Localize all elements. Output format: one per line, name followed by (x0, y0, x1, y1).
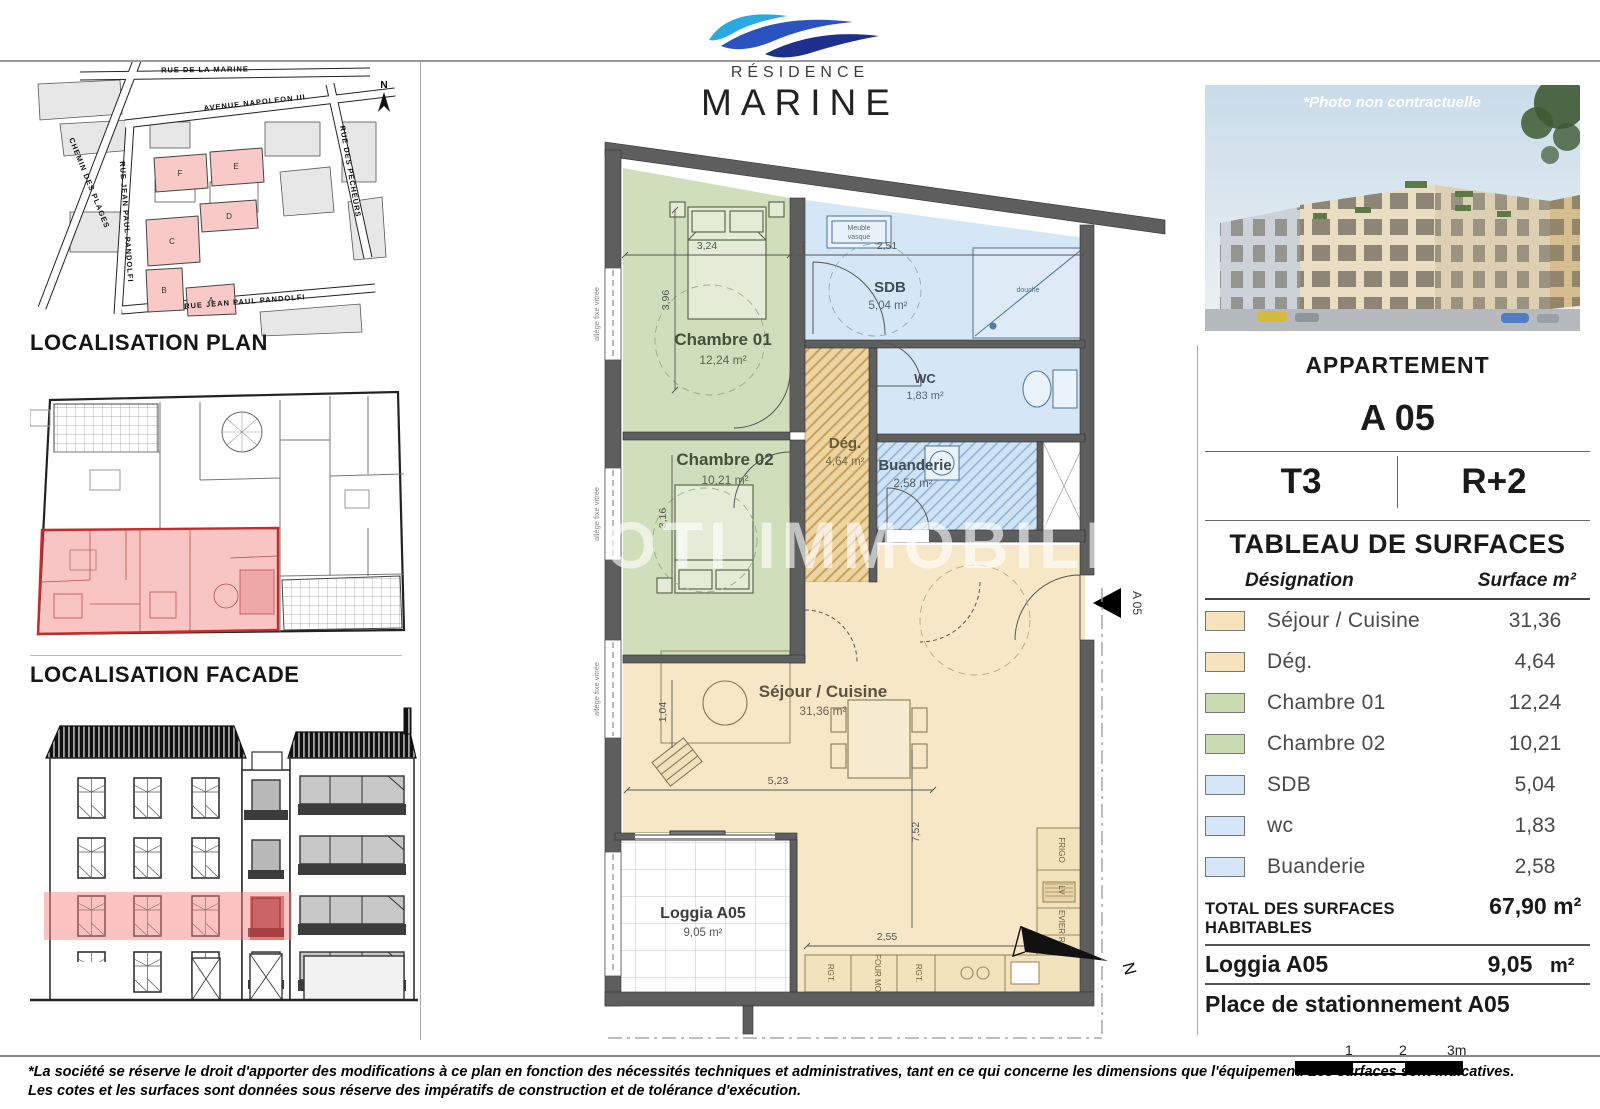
residence-marine-logo: Résidence MARINE (640, 4, 960, 124)
svg-text:RGT.: RGT. (826, 964, 835, 982)
sdb-area: 5,04 m² (869, 300, 908, 312)
entrance-label: A 05 (1130, 591, 1144, 615)
type-floor-row: T3 R+2 (1205, 456, 1590, 508)
table-row: Chambre 02 10,21 (1205, 723, 1590, 764)
sdb-label: SDB (874, 279, 906, 296)
buanderie-label: Buanderie (878, 457, 951, 474)
svg-text:vasque: vasque (848, 234, 871, 241)
parking-label: Place de stationnement A05 (1205, 991, 1590, 1018)
loggia-value: 9,05 (1470, 951, 1550, 978)
svg-text:LV: LV (1057, 885, 1066, 895)
col-surface: Surface m² (1478, 570, 1576, 592)
buanderie-area: 2,58 m² (894, 478, 933, 490)
svg-text:3,96: 3,96 (660, 290, 672, 311)
wc-label: WC (914, 371, 936, 386)
room-label: Dég. (1267, 650, 1313, 674)
table-header-row: Désignation Surface m² (1205, 570, 1590, 600)
facade-section-divider (30, 655, 402, 656)
svg-text:D: D (226, 212, 232, 221)
left-roof (46, 726, 246, 758)
right-column-divider (1197, 345, 1198, 1035)
table-row: SDB 5,04 (1205, 764, 1590, 805)
svg-text:7,52: 7,52 (910, 822, 922, 843)
table-row: wc 1,83 (1205, 805, 1590, 846)
watermark: OTI IMMOBILI (605, 508, 1110, 582)
room-surface: 10,21 (1480, 732, 1590, 756)
svg-text:2,55: 2,55 (877, 931, 898, 943)
disclaimer-line-2: Les cotes et les surfaces sont données s… (28, 1082, 1588, 1101)
logo-residence-text: Résidence (640, 64, 960, 82)
svg-text:C: C (169, 237, 175, 246)
floor-localisation-plan (30, 380, 420, 648)
room-color-swatch (1205, 611, 1245, 631)
room-surface: 4,64 (1480, 650, 1590, 674)
disclaimer: *La société se réserve le droit d'apport… (28, 1063, 1588, 1101)
window-sejour (605, 640, 621, 738)
location-map: F E D C B A RUE DE LA MARINE AVENUE NAPO… (30, 62, 402, 340)
photo-caption: *Photo non contractuelle (1303, 94, 1481, 111)
panel-divider-1 (1205, 451, 1590, 452)
room-label: Séjour / Cuisine (1267, 609, 1420, 633)
svg-text:EVIER: EVIER (1057, 910, 1066, 934)
room-color-swatch (1205, 775, 1245, 795)
loggia-label: Loggia A05 (660, 905, 746, 922)
svg-text:7: 7 (800, 240, 806, 252)
terrace-top-left (54, 404, 158, 452)
table-row: Dég. 4,64 (1205, 641, 1590, 682)
svg-text:allège fixe vitrée: allège fixe vitrée (592, 287, 601, 341)
plan-north-letter: N (1119, 960, 1141, 977)
chambre2-area: 10,21 m² (701, 473, 748, 487)
room-label: Chambre 02 (1267, 732, 1386, 756)
table-row: Buanderie 2,58 (1205, 846, 1590, 887)
chambre1-area: 12,24 m² (699, 353, 746, 367)
total-row: TOTAL DES SURFACES HABITABLES 67,90 m² (1205, 893, 1590, 946)
deg-area: 4,64 m² (826, 456, 865, 468)
apartment-floor-plan: allège fixe vitrée allège fixe vitrée al… (575, 140, 1195, 1045)
right-roof (288, 732, 416, 758)
svg-text:FOUR MO: FOUR MO (873, 954, 882, 992)
unit-type: T3 (1205, 456, 1397, 508)
facade-drawing (30, 700, 420, 1035)
footer-divider (0, 1055, 1600, 1057)
entrance-marker: A 05 (1093, 588, 1144, 618)
table-row: Séjour / Cuisine 31,36 (1205, 600, 1590, 641)
svg-text:B: B (161, 286, 166, 295)
room-color-swatch (1205, 734, 1245, 754)
surface-panel: APPARTEMENT A 05 T3 R+2 TABLEAU DE SURFA… (1205, 352, 1590, 1078)
room-surface: 2,58 (1480, 855, 1590, 879)
localisation-plan-title: LOCALISATION PLAN (30, 330, 268, 356)
panel-divider-2 (1205, 520, 1590, 521)
logo-marine-text: MARINE (640, 82, 960, 124)
localisation-facade-title: LOCALISATION FACADE (30, 662, 299, 688)
room-surface: 1,83 (1480, 814, 1590, 838)
sejour-label: Séjour / Cuisine (759, 682, 887, 701)
wave-logo-icon (695, 4, 905, 62)
svg-text:E: E (233, 162, 238, 171)
appartement-heading: APPARTEMENT (1205, 352, 1590, 379)
window-loggia (605, 852, 621, 976)
room-label: Buanderie (1267, 855, 1365, 879)
svg-text:RUE DE LA MARINE: RUE DE LA MARINE (161, 64, 249, 74)
svg-text:1,04: 1,04 (657, 702, 669, 723)
svg-text:2,51: 2,51 (877, 240, 898, 252)
loggia-row: Loggia A05 9,05 m² (1205, 946, 1590, 985)
surfaces-table-title: TABLEAU DE SURFACES (1205, 529, 1590, 560)
plan-sheet: Résidence MARINE (0, 0, 1600, 1109)
loggia-label: Loggia A05 (1205, 951, 1328, 978)
window-labels: allège fixe vitrée allège fixe vitrée al… (592, 287, 601, 716)
room-color-swatch (1205, 857, 1245, 877)
wc-area: 1,83 m² (906, 390, 944, 402)
room-surface: 31,36 (1480, 609, 1590, 633)
room-surface: 12,24 (1480, 691, 1590, 715)
svg-text:allège fixe vitrée: allège fixe vitrée (592, 487, 601, 541)
room-label: Chambre 01 (1267, 691, 1386, 715)
unit-floor: R+2 (1397, 456, 1590, 508)
svg-text:Meuble: Meuble (848, 225, 871, 232)
chambre2-label: Chambre 02 (676, 450, 773, 469)
loggia-unit: m² (1550, 955, 1590, 978)
disclaimer-line-1: *La société se réserve le droit d'apport… (28, 1063, 1588, 1082)
room-label: wc (1267, 814, 1293, 838)
svg-text:RGT.: RGT. (914, 964, 923, 982)
room-color-swatch (1205, 693, 1245, 713)
chambre1-label: Chambre 01 (674, 330, 771, 349)
col-designation: Désignation (1245, 570, 1354, 592)
total-label: TOTAL DES SURFACES HABITABLES (1205, 900, 1480, 938)
sejour-area: 31,36 m² (799, 704, 846, 718)
loggia-area: 9,05 m² (684, 927, 723, 939)
room-label: SDB (1267, 773, 1311, 797)
svg-text:F: F (178, 169, 183, 178)
svg-text:3,24: 3,24 (697, 240, 718, 252)
room-surface: 5,04 (1480, 773, 1590, 797)
roof-box (252, 752, 282, 770)
table-row: Chambre 01 12,24 (1205, 682, 1590, 723)
facade-unit-highlight (250, 896, 284, 940)
chimney (404, 708, 411, 734)
svg-text:allège fixe vitrée: allège fixe vitrée (592, 662, 601, 716)
building-photo: *Photo non contractuelle (1205, 85, 1580, 331)
left-column-divider (420, 62, 421, 1040)
svg-text:FRIGO: FRIGO (1057, 837, 1066, 862)
terrace-bottom-right (282, 576, 402, 630)
svg-text:douche: douche (1017, 287, 1040, 294)
deg-label: Dég. (829, 435, 862, 452)
total-value: 67,90 m² (1480, 893, 1590, 920)
unit-number: A 05 (1205, 397, 1590, 439)
room-color-swatch (1205, 816, 1245, 836)
room-color-swatch (1205, 652, 1245, 672)
svg-text:N: N (380, 80, 387, 91)
svg-text:5,23: 5,23 (768, 775, 789, 787)
window-chambre1 (605, 268, 621, 360)
